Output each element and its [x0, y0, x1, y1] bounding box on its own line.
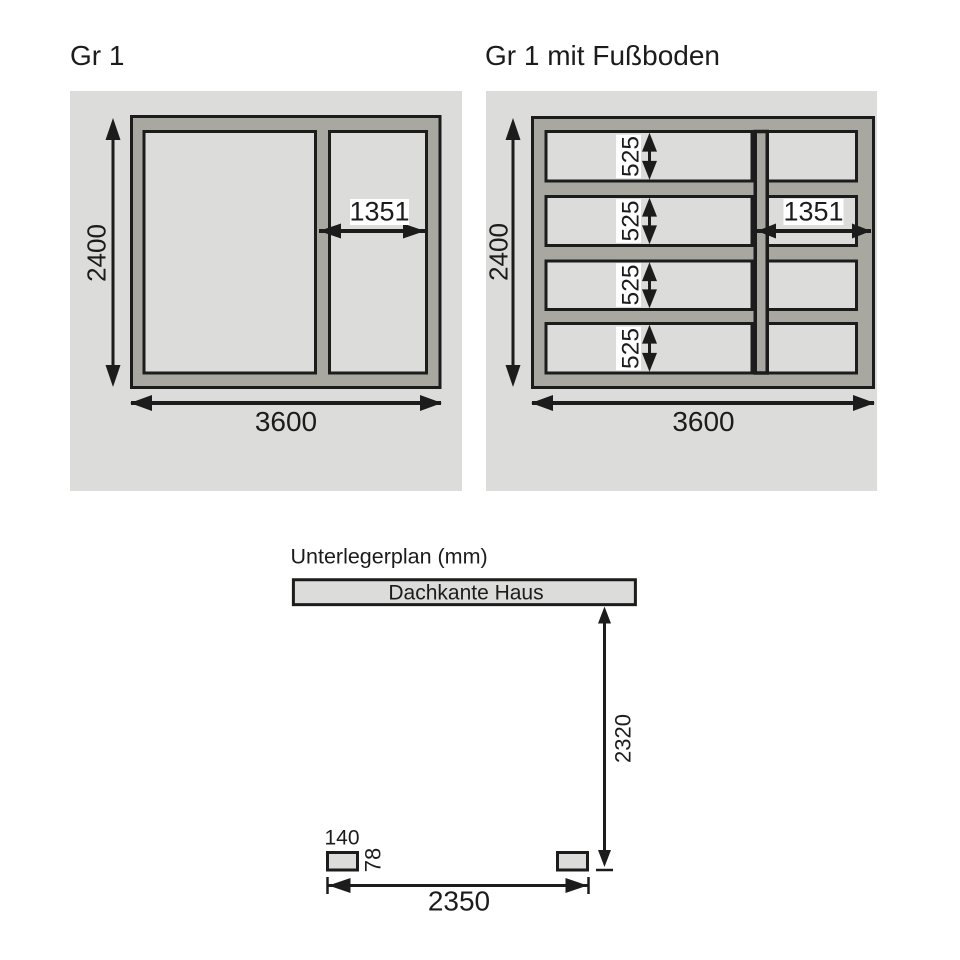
svg-text:78: 78 — [361, 848, 386, 872]
svg-text:140: 140 — [324, 827, 359, 850]
svg-text:Gr 1 mit Fußboden: Gr 1 mit Fußboden — [485, 40, 720, 71]
svg-text:Dachkante Haus: Dachkante Haus — [388, 582, 543, 605]
svg-text:525: 525 — [618, 328, 645, 369]
svg-text:2400: 2400 — [82, 224, 112, 282]
svg-text:1351: 1351 — [349, 197, 409, 227]
svg-text:3600: 3600 — [672, 406, 734, 437]
svg-text:Unterlegerplan (mm): Unterlegerplan (mm) — [291, 545, 488, 569]
svg-text:Gr 1: Gr 1 — [70, 40, 124, 71]
svg-text:2350: 2350 — [428, 886, 490, 917]
svg-text:1351: 1351 — [783, 197, 843, 227]
svg-text:2320: 2320 — [611, 714, 636, 763]
svg-text:3600: 3600 — [255, 406, 317, 437]
svg-text:2400: 2400 — [484, 223, 514, 281]
svg-text:525: 525 — [618, 265, 645, 306]
svg-text:525: 525 — [618, 201, 645, 242]
svg-text:525: 525 — [618, 136, 645, 177]
